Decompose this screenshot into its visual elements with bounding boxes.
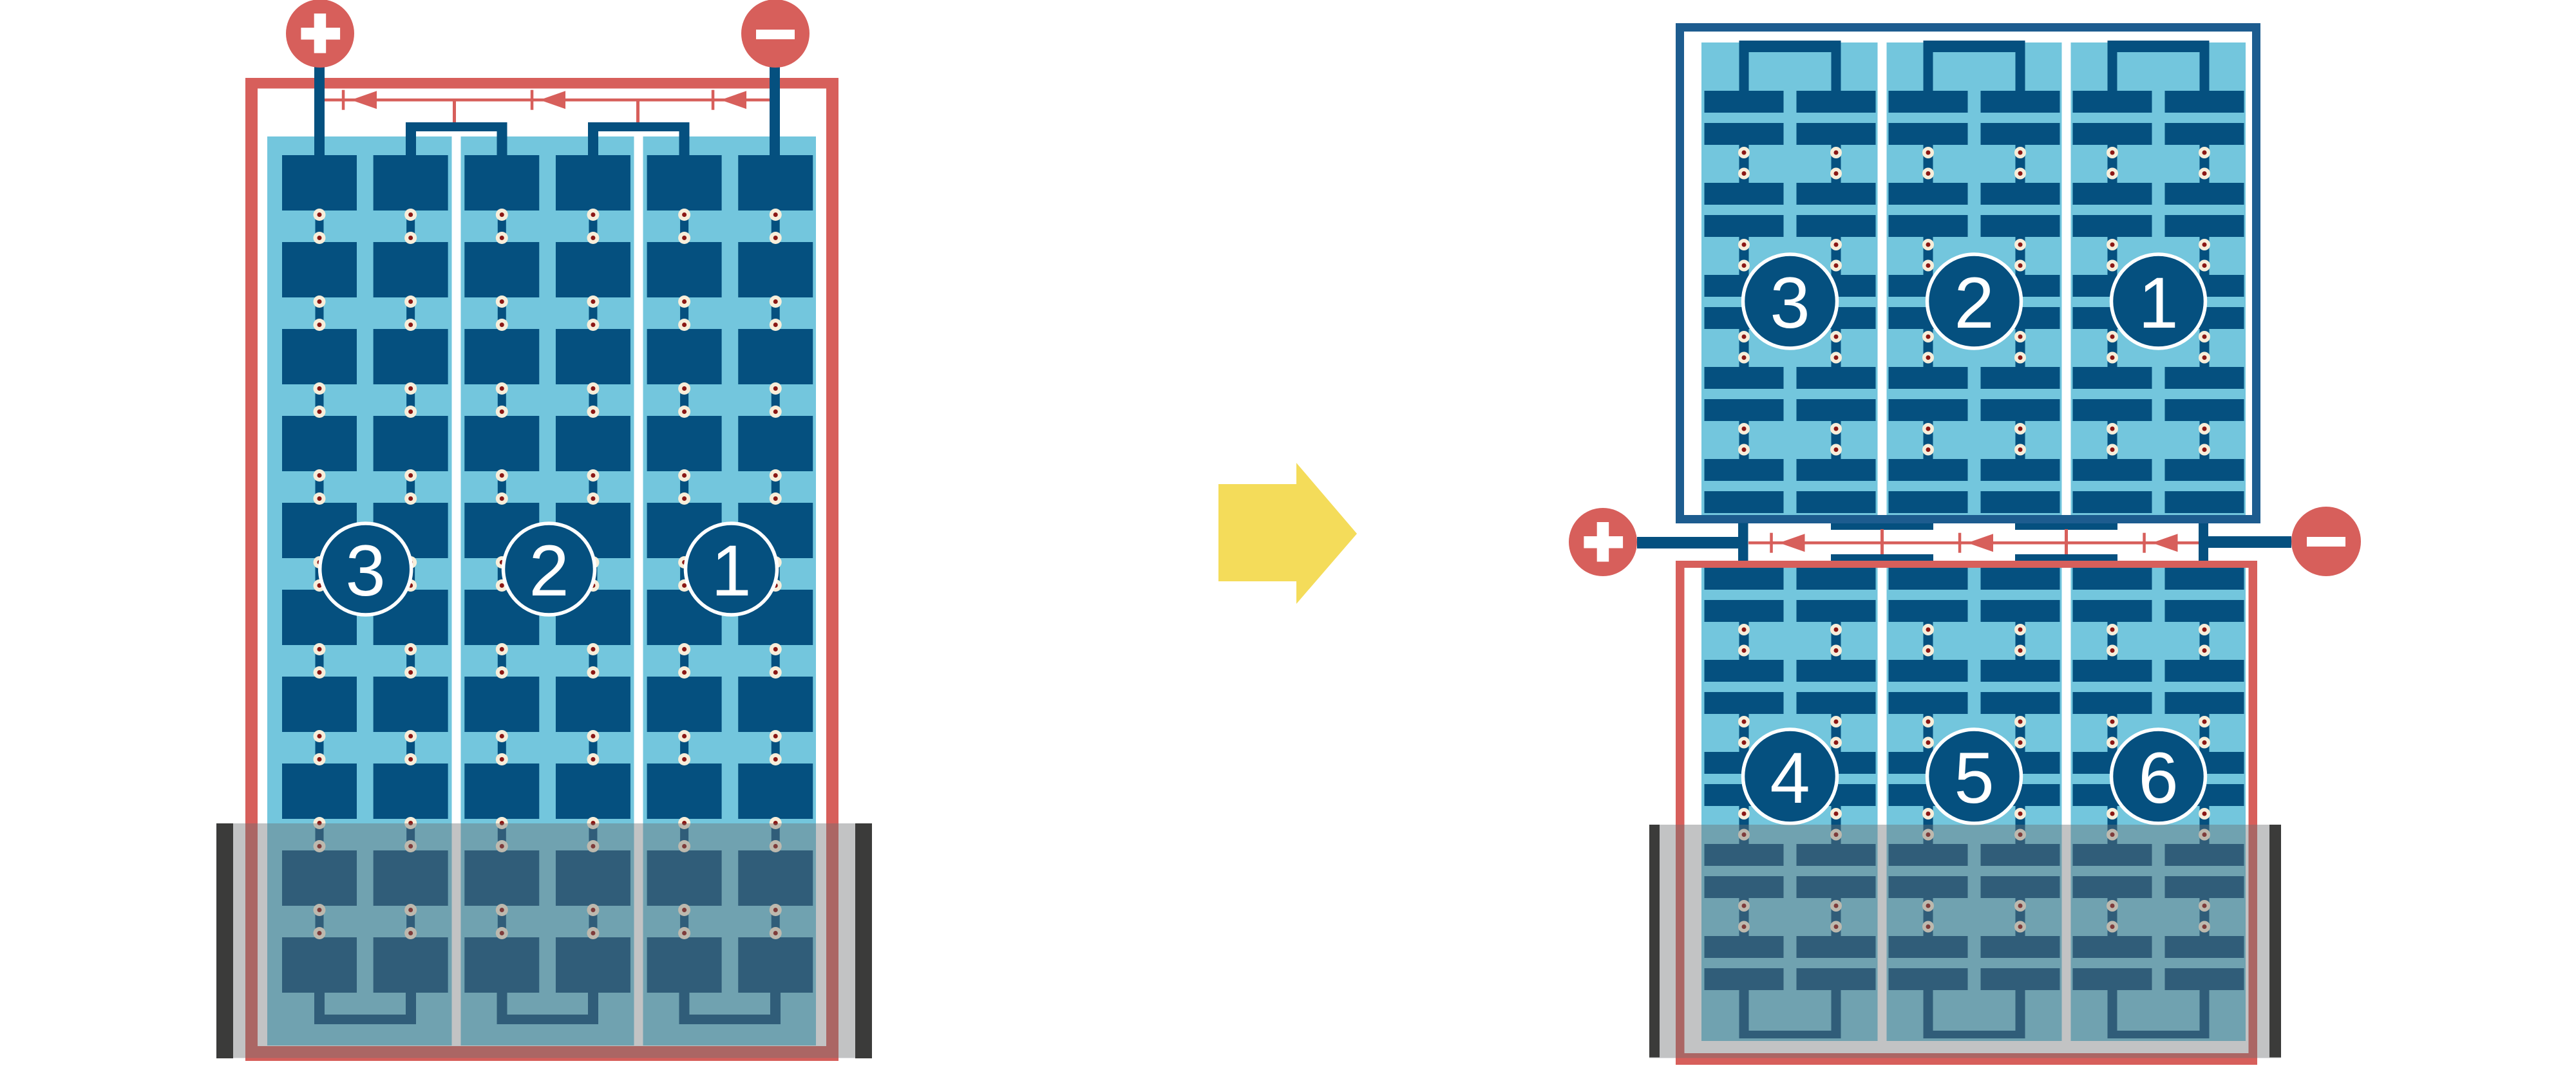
svg-text:1: 1 <box>711 530 751 611</box>
svg-text:6: 6 <box>2138 738 2178 818</box>
svg-text:4: 4 <box>1770 738 1810 818</box>
svg-text:2: 2 <box>1954 263 1994 343</box>
svg-text:5: 5 <box>1954 738 1994 818</box>
svg-text:3: 3 <box>346 530 386 611</box>
svg-text:1: 1 <box>2138 263 2178 343</box>
svg-text:3: 3 <box>1770 263 1810 343</box>
svg-text:2: 2 <box>529 530 569 611</box>
